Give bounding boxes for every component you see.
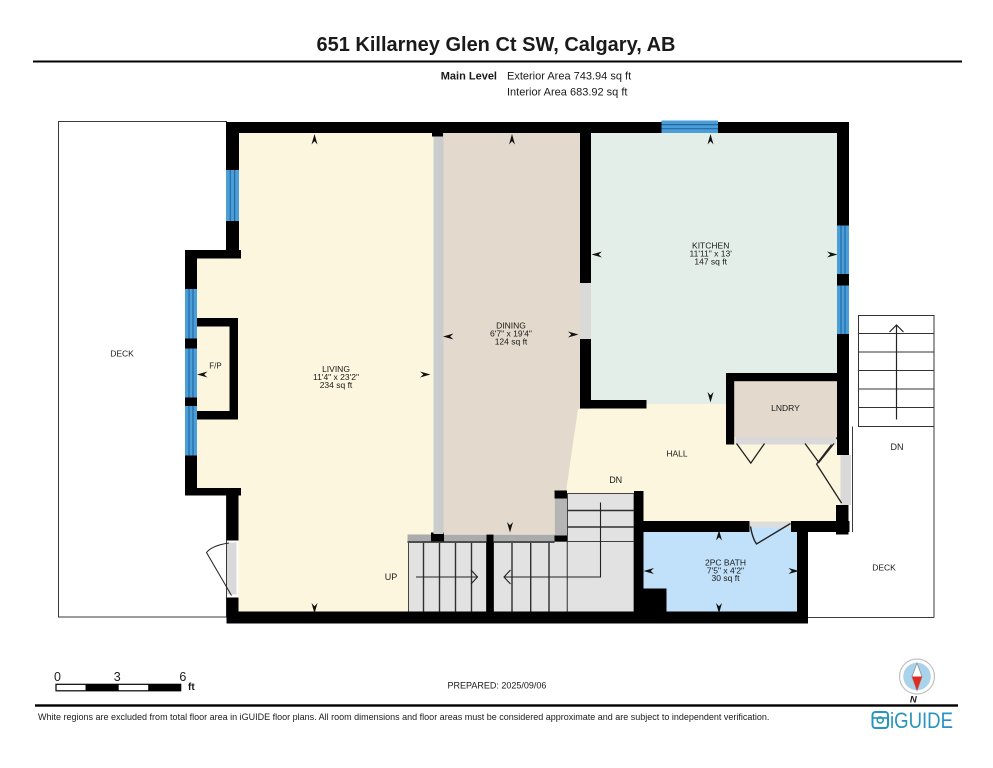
svg-text:PREPARED: 2025/09/06: PREPARED: 2025/09/06 <box>448 681 547 691</box>
svg-text:DECK: DECK <box>110 349 134 359</box>
svg-text:DECK: DECK <box>872 563 896 573</box>
svg-text:124 sq ft: 124 sq ft <box>495 336 528 346</box>
svg-text:6: 6 <box>179 670 186 684</box>
svg-text:F/P: F/P <box>209 362 221 371</box>
svg-text:Interior Area 683.92 sq ft: Interior Area 683.92 sq ft <box>507 87 627 99</box>
svg-text:N: N <box>910 695 918 706</box>
svg-text:651 Killarney Glen Ct SW, Calg: 651 Killarney Glen Ct SW, Calgary, AB <box>316 34 675 56</box>
svg-text:234 sq ft: 234 sq ft <box>320 380 353 390</box>
svg-text:147 sq ft: 147 sq ft <box>694 256 727 266</box>
svg-text:ft: ft <box>188 682 195 693</box>
svg-text:HALL: HALL <box>666 449 688 459</box>
svg-text:DN: DN <box>891 442 904 452</box>
svg-text:Exterior Area 743.94 sq ft: Exterior Area 743.94 sq ft <box>507 71 631 83</box>
svg-text:0: 0 <box>54 670 61 684</box>
svg-text:White regions are excluded fro: White regions are excluded from total fl… <box>38 712 769 722</box>
svg-text:UP: UP <box>385 572 398 582</box>
svg-text:3: 3 <box>114 670 121 684</box>
svg-text:DN: DN <box>609 475 622 485</box>
svg-text:LNDRY: LNDRY <box>771 403 800 413</box>
svg-text:iGUIDE: iGUIDE <box>890 708 953 733</box>
svg-text:Main Level: Main Level <box>441 71 497 83</box>
svg-text:30 sq ft: 30 sq ft <box>712 573 741 583</box>
